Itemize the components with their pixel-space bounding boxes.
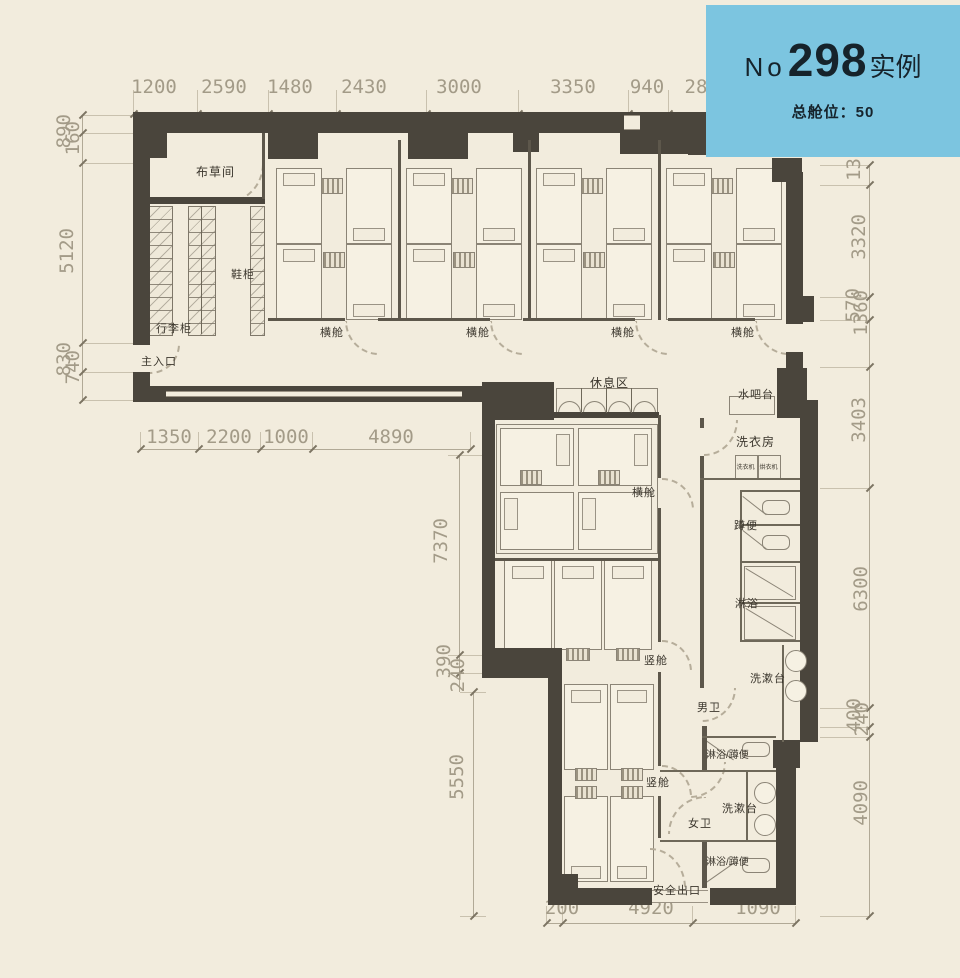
pillow [413, 173, 445, 186]
wall-segment [133, 372, 150, 402]
wall-segment [268, 133, 318, 159]
dim-label: 3000 [414, 76, 504, 98]
dim-label: 5550 [446, 754, 468, 800]
room-label-basin: 洗漱台 [722, 800, 758, 816]
pillow [612, 566, 644, 579]
pillow [353, 228, 385, 241]
room-label-shower: 淋浴 [735, 595, 759, 611]
wall-segment [133, 126, 150, 345]
pillow [673, 173, 705, 186]
divider-wall [398, 140, 401, 320]
stall-wall [660, 770, 776, 772]
ladder [520, 470, 542, 485]
locker-cabinet [188, 206, 216, 336]
room-label-basin: 洗漱台 [750, 670, 786, 686]
ladder [566, 648, 590, 661]
pillow [353, 304, 385, 317]
pillow [673, 249, 705, 262]
stall-wall [740, 561, 800, 563]
room-label-entrance: 主入口 [141, 353, 177, 369]
ladder [321, 178, 343, 194]
stall-wall [740, 490, 800, 492]
pillow [483, 304, 515, 317]
room-label-hcabin: 横舱 [466, 324, 490, 340]
room-label-squat: 蹲便 [734, 517, 758, 533]
extension-line [820, 488, 869, 489]
ladder [711, 178, 733, 194]
room-label-waterbar: 水吧台 [738, 386, 774, 402]
extension-line [448, 455, 482, 456]
room-label-vcabin: 竖舱 [646, 774, 670, 790]
extension-line [82, 372, 133, 373]
pillow [743, 228, 775, 241]
window-slit [166, 391, 462, 397]
locker-divider [201, 206, 202, 334]
badge-subtitle: 总舱位：50 [706, 101, 960, 122]
pillow [613, 228, 645, 241]
room-label-hcabin: 横舱 [731, 324, 755, 340]
extension-line [82, 133, 133, 134]
partition [495, 558, 658, 561]
room-label-hcabin: 横舱 [632, 484, 656, 500]
tick-mark [866, 912, 874, 920]
pillow [283, 173, 315, 186]
pillow [617, 690, 647, 703]
badge-suffix: 实例 [869, 47, 921, 84]
room-label-exit: 安全出口 [653, 882, 701, 898]
door-arc [635, 321, 669, 355]
dim-line [473, 692, 474, 918]
tick-mark [866, 161, 874, 169]
shelf-bar [246, 197, 263, 204]
washbasin [754, 814, 776, 836]
partition [658, 672, 661, 766]
ladder [453, 252, 475, 268]
badge-title: No 298 实例 [706, 33, 960, 87]
dim-label: 1000 [241, 426, 331, 448]
room-label-laundry: 洗衣房 [736, 433, 775, 450]
tick-mark [866, 484, 874, 492]
dim-label: 940 [612, 76, 682, 98]
room-label-linen: 布草间 [196, 163, 235, 180]
ladder [575, 786, 597, 799]
dim-label: 4890 [346, 426, 436, 448]
partition [658, 415, 661, 478]
extension-line [820, 737, 869, 738]
door-arc [662, 478, 694, 510]
wall-segment [786, 296, 814, 322]
extension-line [82, 163, 133, 164]
ladder [713, 252, 735, 268]
sofa-divider [631, 388, 632, 413]
door-arc [690, 762, 726, 798]
wall-segment [482, 382, 554, 420]
dim-label: 4090 [850, 780, 872, 826]
pillow [413, 249, 445, 262]
pillow [543, 173, 575, 186]
pillow [283, 249, 315, 262]
ladder [621, 786, 643, 799]
dim-label: 240 [851, 702, 873, 736]
pillow [617, 866, 647, 879]
extension-line [820, 916, 869, 917]
door-arc [704, 420, 738, 456]
pillow [634, 434, 648, 466]
corridor-wall [523, 318, 635, 321]
room-label-shower-squat: 淋浴/蹲便 [706, 853, 749, 868]
room-label-rest: 休息区 [590, 374, 629, 391]
dim-label: 3320 [848, 214, 870, 260]
pillow [512, 566, 544, 579]
dim-label: 1360 [850, 290, 872, 336]
badge-number: 298 [788, 33, 868, 87]
locker-cabinet [147, 206, 173, 336]
dim-label: 3403 [848, 397, 870, 443]
partition [658, 508, 661, 642]
dim-label: 740 [62, 350, 84, 384]
extension-line [82, 115, 133, 116]
extension-line [82, 400, 133, 401]
wall-segment [133, 133, 167, 158]
badge-no: No [744, 52, 785, 83]
dim-line [546, 923, 796, 924]
divider-wall [528, 140, 531, 320]
corridor-wall [378, 318, 490, 321]
dim-label: 3350 [528, 76, 618, 98]
extension-line [82, 343, 133, 344]
corridor-wall [668, 318, 755, 321]
floor-plan: No 298 实例 总舱位：50 [0, 0, 960, 978]
partition [700, 418, 704, 428]
sofa-divider [606, 388, 607, 413]
wall-segment [620, 133, 688, 154]
pillow [556, 434, 570, 466]
dim-line [140, 449, 471, 450]
divider-wall [658, 140, 661, 320]
ladder [323, 252, 345, 268]
partition [700, 456, 704, 688]
room-label-vcabin: 竖舱 [644, 652, 668, 668]
window-slit [624, 115, 640, 130]
partition [700, 478, 800, 480]
pillow [483, 228, 515, 241]
dim-label: 160 [62, 121, 84, 155]
wall-segment [133, 112, 773, 133]
wall-segment [482, 400, 495, 652]
stall-wall [702, 736, 776, 738]
tick-mark [467, 445, 475, 453]
ladder [581, 178, 603, 194]
wall-segment [710, 888, 796, 905]
pillow [562, 566, 594, 579]
room-label-dryer: 烘衣机 [758, 462, 779, 471]
partition [658, 796, 661, 838]
wall-segment [513, 133, 539, 152]
counter [782, 645, 784, 742]
room-label-luggage: 行李柜 [156, 320, 192, 336]
tick-mark [866, 363, 874, 371]
info-badge: No 298 实例 总舱位：50 [706, 5, 960, 157]
dim-label: 7370 [430, 518, 452, 564]
room-label-men: 男卫 [697, 699, 721, 715]
dim-label: 240 [447, 658, 469, 692]
ladder [616, 648, 640, 661]
pillow [571, 690, 601, 703]
pillow [543, 249, 575, 262]
wall-segment [688, 133, 708, 155]
wall-segment [482, 648, 562, 678]
door-arc [755, 321, 789, 355]
tick-mark [866, 181, 874, 189]
extension-line [820, 367, 869, 368]
pillow [743, 304, 775, 317]
room-label-washer: 洗衣机 [735, 462, 756, 471]
wall-segment [548, 668, 562, 888]
dim-label: 6300 [850, 566, 872, 612]
wall-segment [776, 742, 796, 905]
ladder [451, 178, 473, 194]
stall-wall [740, 490, 742, 642]
tick-mark [792, 919, 800, 927]
washbasin [785, 680, 807, 702]
dim-label: 5120 [56, 228, 78, 274]
toilet [762, 500, 790, 515]
room-label-shoe: 鞋柜 [231, 266, 255, 282]
stall-wall [740, 640, 800, 642]
pillow [504, 498, 518, 530]
extension-line [820, 185, 869, 186]
ladder [598, 470, 620, 485]
door-arc [345, 321, 379, 355]
pillow [582, 498, 596, 530]
corridor-wall [268, 318, 345, 321]
pillow [613, 304, 645, 317]
stall-wall [660, 840, 776, 842]
room-label-women: 女卫 [688, 815, 712, 831]
room-label-hcabin: 横舱 [320, 324, 344, 340]
sofa-divider [581, 388, 582, 413]
dim-label: 2430 [319, 76, 409, 98]
room-label-shower-squat: 淋浴/蹲便 [706, 746, 749, 761]
wall-segment [408, 133, 468, 159]
ladder [621, 768, 643, 781]
ladder [575, 768, 597, 781]
dim-label: 13 [843, 158, 865, 181]
partition [262, 133, 265, 199]
ladder [583, 252, 605, 268]
washbasin [785, 650, 807, 672]
room-label-hcabin: 横舱 [611, 324, 635, 340]
door-arc [490, 321, 524, 355]
